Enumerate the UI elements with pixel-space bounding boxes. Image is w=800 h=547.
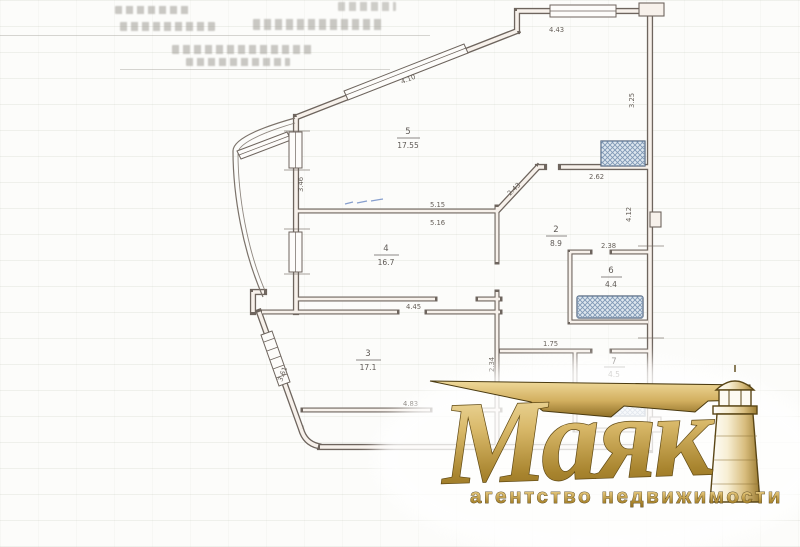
blue-ink-annotation bbox=[345, 199, 383, 204]
dimension-label: 5.16 bbox=[430, 219, 445, 227]
room-label: 6 4.4 bbox=[601, 266, 622, 289]
room-area: 17.55 bbox=[397, 141, 419, 150]
room-number: 6 bbox=[608, 266, 613, 276]
room-number: 5 bbox=[405, 127, 410, 137]
dimension-label: 1.75 bbox=[543, 340, 558, 348]
balcony-window bbox=[237, 132, 291, 159]
dimension-label: 4.45 bbox=[406, 303, 421, 311]
window bbox=[289, 232, 302, 272]
dimension-label: 2.62 bbox=[589, 173, 604, 181]
room-label: 5 17.55 bbox=[397, 127, 420, 150]
room-label: 3 17.1 bbox=[356, 349, 381, 372]
window bbox=[344, 44, 468, 100]
room-label: 4 16.7 bbox=[374, 244, 399, 267]
dimension-label: 2.38 bbox=[601, 242, 616, 250]
room-area: 17.1 bbox=[360, 363, 377, 372]
scanned-floor-plan-photo: 5 17.55 4 16.7 3 17.1 2 8.9 6 4.4 7 4.5 bbox=[0, 0, 800, 547]
dimension-label: 3.25 bbox=[628, 93, 636, 108]
watermark-tagline: агентство недвижимости bbox=[470, 485, 783, 508]
room-number: 3 bbox=[365, 349, 370, 359]
room-area: 16.7 bbox=[378, 258, 395, 267]
dimension-label: 4.43 bbox=[549, 26, 564, 34]
bathtub-icon bbox=[577, 296, 643, 318]
room-number: 4 bbox=[383, 244, 388, 254]
window bbox=[289, 132, 302, 168]
room-area: 4.4 bbox=[605, 280, 617, 289]
dimension-label: 5.15 bbox=[430, 201, 445, 209]
room-area: 8.9 bbox=[550, 239, 562, 248]
window bbox=[550, 5, 616, 17]
watermark-logo: Маяк агентство недвижимости bbox=[375, 358, 800, 547]
vent-shaft-icon bbox=[601, 141, 645, 166]
dimension-label: 3.46 bbox=[297, 177, 305, 192]
room-number: 2 bbox=[553, 225, 558, 235]
dimension-label: 4.12 bbox=[625, 207, 633, 222]
room-label: 2 8.9 bbox=[546, 225, 567, 248]
floor-plan-drawing: 5 17.55 4 16.7 3 17.1 2 8.9 6 4.4 7 4.5 bbox=[0, 0, 800, 547]
